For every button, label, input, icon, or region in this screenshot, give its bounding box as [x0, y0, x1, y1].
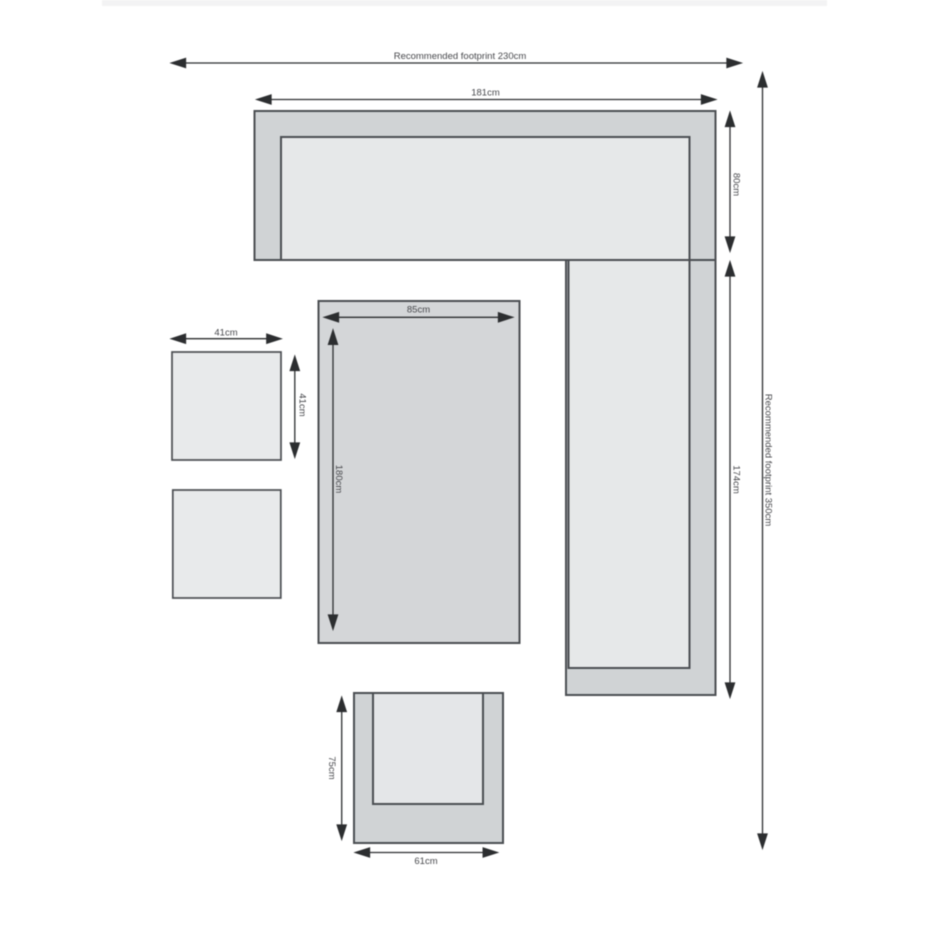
svg-text:180cm: 180cm [333, 465, 344, 494]
svg-text:Recommended footprint 350cm: Recommended footprint 350cm [763, 394, 774, 527]
svg-text:Recommended footprint 230cm: Recommended footprint 230cm [394, 51, 527, 62]
svg-text:75cm: 75cm [326, 756, 337, 779]
svg-text:85cm: 85cm [407, 305, 430, 316]
svg-text:41cm: 41cm [214, 328, 237, 339]
svg-text:41cm: 41cm [297, 393, 308, 416]
svg-text:80cm: 80cm [731, 173, 742, 196]
svg-text:181cm: 181cm [471, 88, 500, 99]
svg-text:61cm: 61cm [414, 856, 437, 867]
svg-text:174cm: 174cm [731, 465, 742, 494]
